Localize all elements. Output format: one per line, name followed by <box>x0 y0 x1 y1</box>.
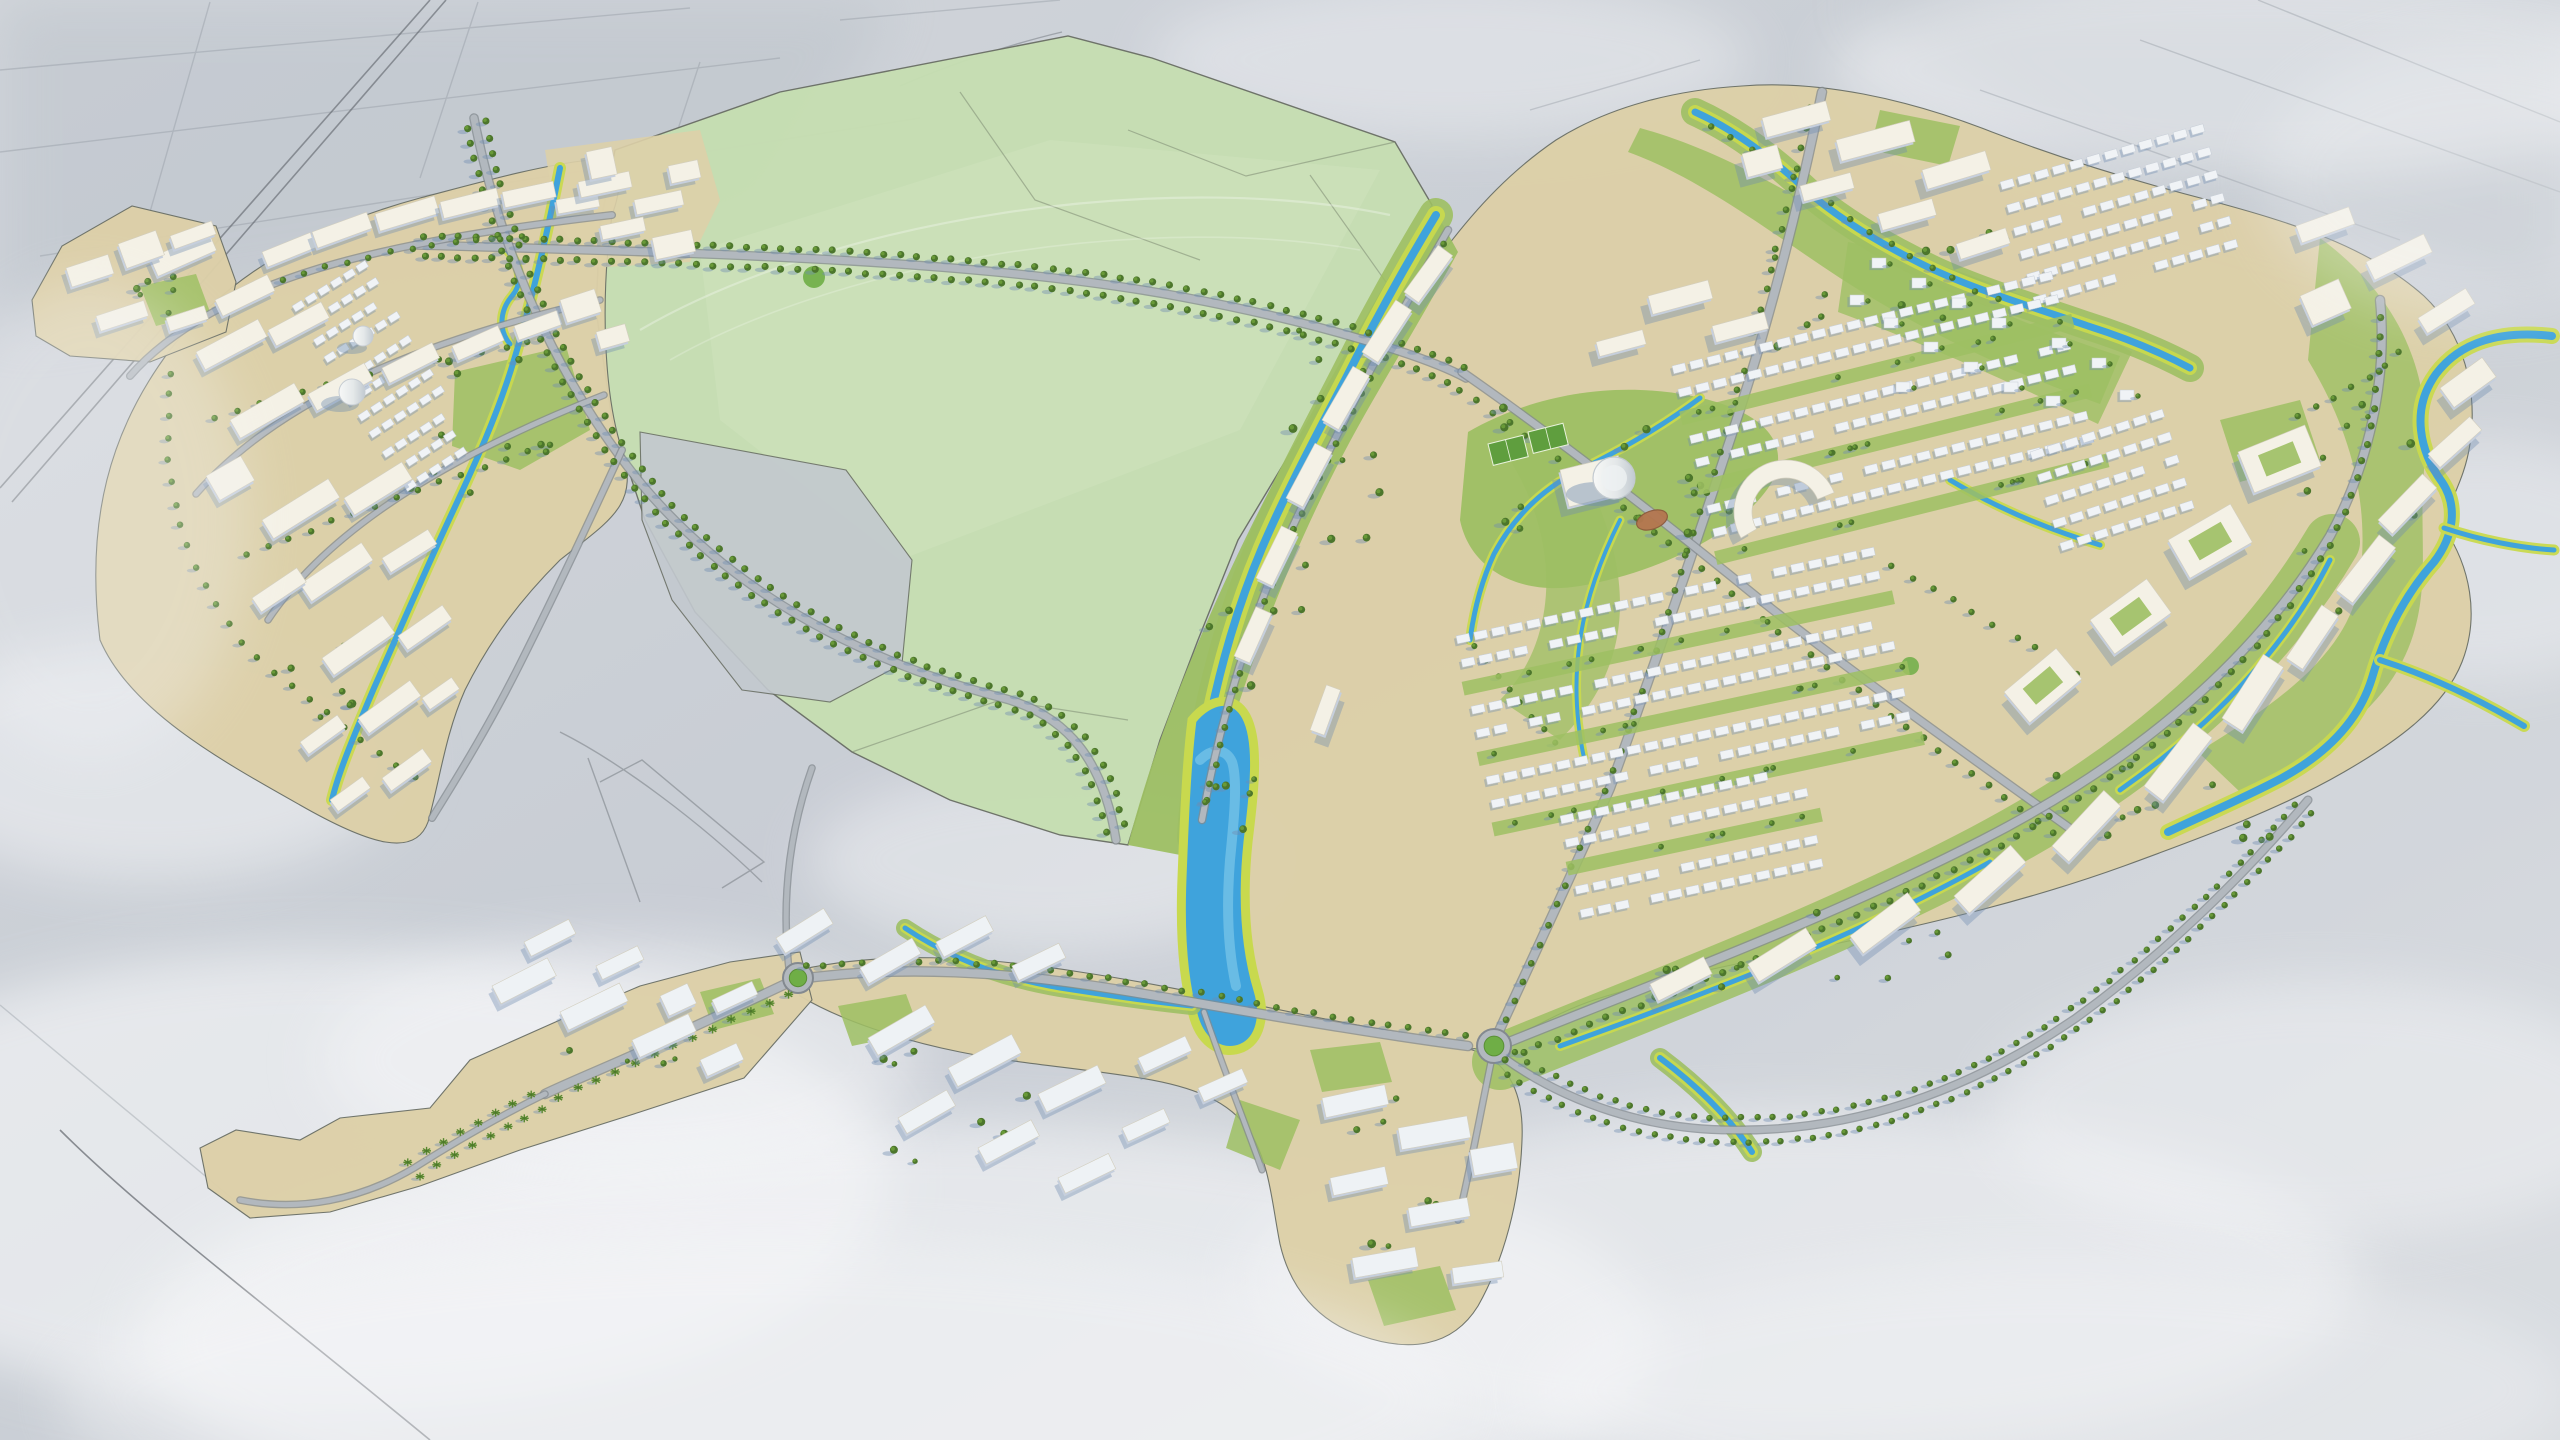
master-plan-rendering <box>0 0 2560 1440</box>
master-plan-stage <box>0 0 2560 1440</box>
